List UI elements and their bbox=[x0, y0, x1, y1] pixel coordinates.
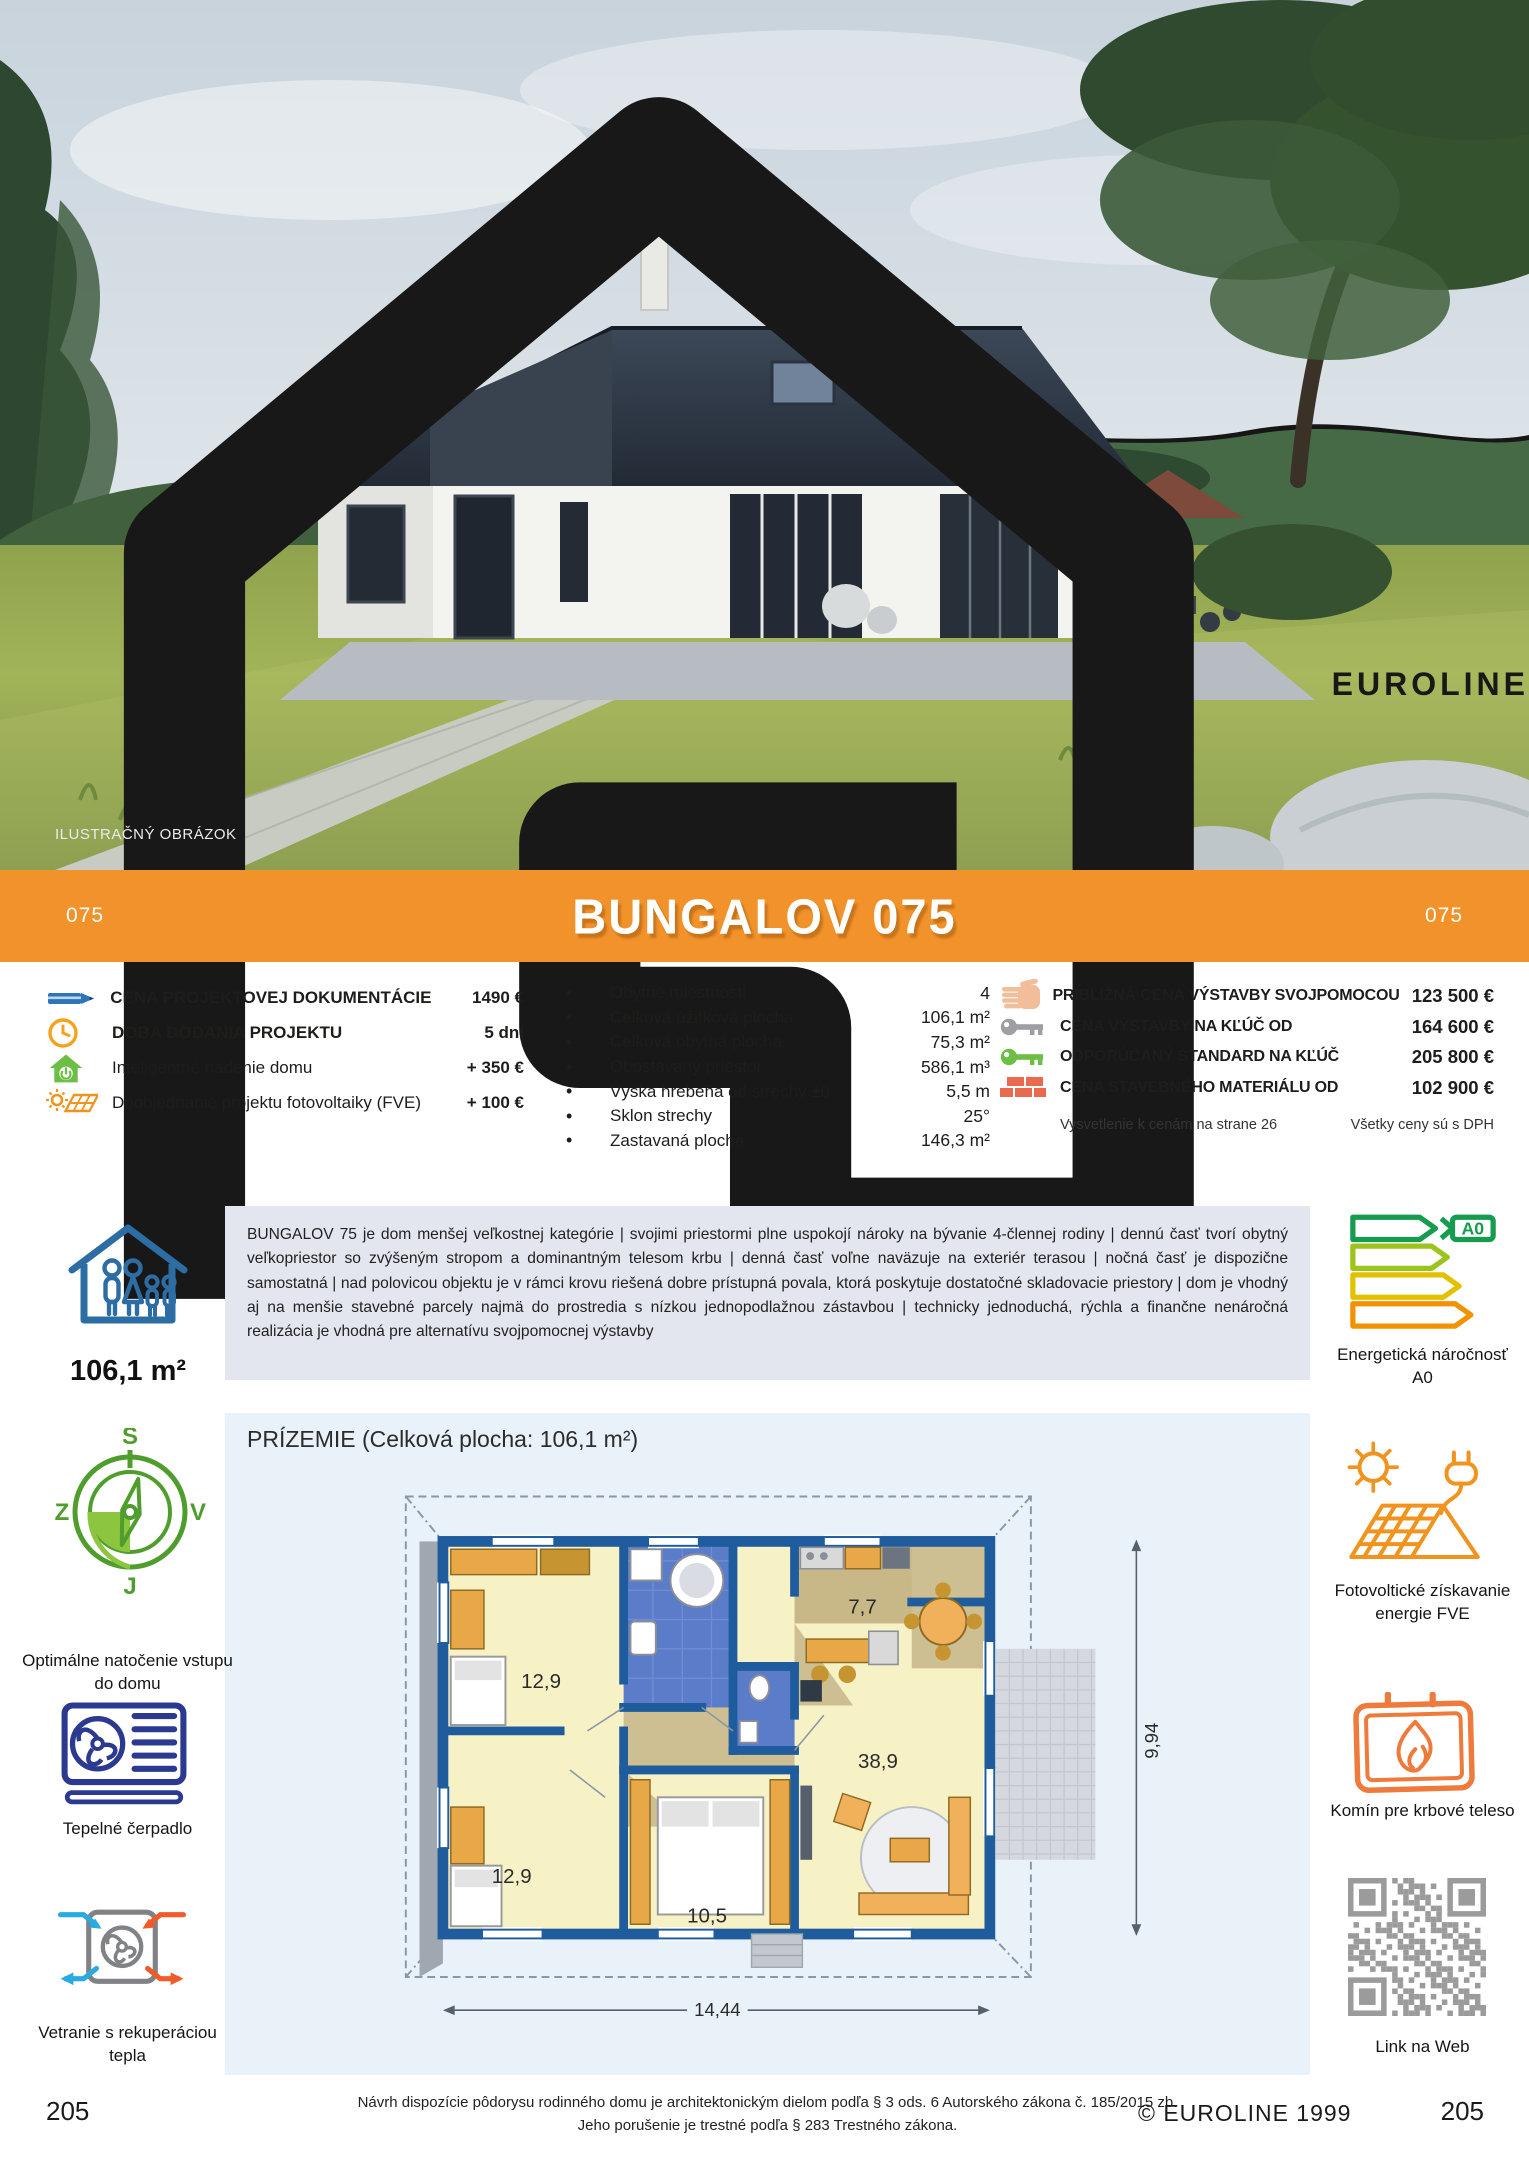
bullet bbox=[556, 1130, 610, 1151]
parameter-label: Celková obytná plocha bbox=[610, 1032, 870, 1052]
parameter-row: Zastavaná plocha146,3 m² bbox=[556, 1129, 990, 1154]
floorplan-title: PRÍZEMIE (Celková plocha: 106,1 m²) bbox=[247, 1426, 638, 1453]
parameter-row: Celková úžitková plocha106,1 m² bbox=[556, 1006, 990, 1031]
parameter-label: Obostavaný priestor bbox=[610, 1057, 870, 1077]
parameter-value: 75,3 m² bbox=[870, 1032, 990, 1053]
spec-row: CENA STAVEBNÉHO MATERIÁLU OD 102 900 € bbox=[1000, 1073, 1494, 1104]
compass-icon: S Z V J bbox=[52, 1428, 208, 1601]
spec-label: CENA STAVEBNÉHO MATERIÁLU OD bbox=[1060, 1079, 1386, 1097]
hand-icon bbox=[1000, 979, 1052, 1013]
spec-row: Doobjednanie projektu fotovoltaiky (FVE)… bbox=[46, 1085, 524, 1120]
model-code-right: 075 bbox=[1359, 904, 1529, 928]
photo-caption: ILUSTRAČNÝ OBRÁZOK bbox=[55, 826, 237, 843]
compass-north: S bbox=[122, 1428, 138, 1450]
spec-row: ODPORÚČANÝ ŠTANDARD NA KĽÚČ 205 800 € bbox=[1000, 1042, 1494, 1073]
spec-row: DOBA DODANIA PROJEKTU 5 dní bbox=[46, 1015, 524, 1050]
bricks-icon bbox=[1000, 1075, 1060, 1101]
project-price-list: CENA PROJEKTOVEJ DOKUMENTÁCIE 1490 € DOB… bbox=[46, 980, 524, 1120]
bullet bbox=[556, 1081, 610, 1102]
heat-pump-caption: Tepelné čerpadlo bbox=[20, 1818, 235, 1841]
spec-label: CENA PROJEKTOVEJ DOKUMENTÁCIE bbox=[110, 988, 431, 1008]
parameter-row: Celková obytná plocha75,3 m² bbox=[556, 1030, 990, 1055]
energy-rating-block: A0 bbox=[1330, 1212, 1515, 1335]
floorplan-drawing: 12,9 12,9 10,5 7,7 38,9 9,94 14,44 bbox=[345, 1475, 1205, 2061]
page-number-left: 205 bbox=[46, 2096, 89, 2127]
energy-caption: Energetická náročnosť A0 bbox=[1330, 1344, 1515, 1390]
total-area-badge: 106,1 m² bbox=[36, 1355, 220, 1388]
compass-west: Z bbox=[55, 1499, 70, 1526]
compass-south: J bbox=[123, 1573, 136, 1596]
parameter-label: Výška hrebeňa od strechy ±0 bbox=[610, 1082, 870, 1102]
brand-name: EUROLINE bbox=[1332, 666, 1529, 703]
clock-icon bbox=[46, 1016, 112, 1050]
area-block: 106,1 m² bbox=[36, 1216, 220, 1388]
room-label-kitchen: 7,7 bbox=[848, 1596, 877, 1619]
parameter-value: 25° bbox=[870, 1106, 990, 1127]
parameter-row: Výška hrebeňa od strechy ±05,5 m bbox=[556, 1079, 990, 1104]
room-label-bedroom3: 10,5 bbox=[687, 1904, 727, 1927]
construction-price-list: PRIBLIŽNÁ CENA VÝSTAVBY SVOJPOMOCOU 123 … bbox=[1000, 981, 1494, 1103]
fireplace-caption: Komín pre krbové teleso bbox=[1330, 1800, 1515, 1823]
family-house-icon bbox=[64, 1216, 192, 1328]
spec-row: PRIBLIŽNÁ CENA VÝSTAVBY SVOJPOMOCOU 123 … bbox=[1000, 981, 1494, 1012]
solar-addon-icon bbox=[46, 1087, 112, 1119]
spec-value: 5 dní bbox=[429, 1023, 524, 1043]
spec-label: PRIBLIŽNÁ CENA VÝSTAVBY SVOJPOMOCOU bbox=[1052, 987, 1399, 1005]
bullet bbox=[556, 983, 610, 1004]
key-green-icon bbox=[1000, 1046, 1060, 1068]
room-label-bedroom2: 12,9 bbox=[492, 1865, 532, 1888]
spec-value: 123 500 € bbox=[1400, 985, 1494, 1007]
compass-caption: Optimálne natočenie vstupu do domu bbox=[20, 1650, 235, 1696]
copyright: © EUROLINE 1999 bbox=[1138, 2100, 1351, 2127]
parameters-list: Obytné miestnosti4 Celková úžitková ploc… bbox=[556, 981, 990, 1153]
heat-pump-icon bbox=[58, 1700, 190, 1811]
parameter-label: Obytné miestnosti bbox=[610, 983, 870, 1003]
ventilation-icon bbox=[58, 1896, 186, 2005]
smart-home-icon bbox=[46, 1050, 112, 1086]
price-notes: Vysvetlenie k cenám na strane 26 Všetky … bbox=[1000, 1117, 1494, 1133]
spec-value: 205 800 € bbox=[1386, 1046, 1494, 1068]
catalog-page: EUROLINE ILUSTRAČNÝ OBRÁZOK 075 BUNGALOV… bbox=[0, 0, 1529, 2160]
photovoltaic-icon bbox=[1342, 1436, 1498, 1573]
ventilation-caption: Vetranie s rekuperáciou tepla bbox=[20, 2022, 235, 2068]
price-note-left: Vysvetlenie k cenám na strane 26 bbox=[1000, 1117, 1351, 1133]
dim-width-label: 14,44 bbox=[694, 1999, 740, 2020]
parameter-row: Sklon strechy25° bbox=[556, 1104, 990, 1129]
spec-value: + 350 € bbox=[429, 1058, 524, 1078]
spec-label: Inteligentné riadenie domu bbox=[112, 1058, 429, 1078]
model-code-left: 075 bbox=[0, 904, 170, 928]
spec-value: 102 900 € bbox=[1386, 1077, 1494, 1099]
terrace bbox=[996, 1649, 1096, 1860]
price-note-right: Všetky ceny sú s DPH bbox=[1351, 1117, 1494, 1133]
bullet bbox=[556, 1057, 610, 1078]
parameter-value: 586,1 m³ bbox=[870, 1057, 990, 1078]
spec-row: Inteligentné riadenie domu + 350 € bbox=[46, 1050, 524, 1085]
parameter-row: Obytné miestnosti4 bbox=[556, 981, 990, 1006]
spec-value: 1490 € bbox=[431, 988, 524, 1008]
spec-label: Doobjednanie projektu fotovoltaiky (FVE) bbox=[112, 1093, 429, 1113]
page-title: BUNGALOV 075 bbox=[170, 887, 1359, 944]
pencil-icon bbox=[46, 984, 110, 1012]
floorplan-section: PRÍZEMIE (Celková plocha: 106,1 m²) bbox=[225, 1413, 1310, 2075]
dim-height-label: 9,94 bbox=[1141, 1723, 1162, 1759]
parameter-label: Celková úžitková plocha bbox=[610, 1008, 870, 1028]
parameter-value: 106,1 m² bbox=[870, 1007, 990, 1028]
page-number-right: 205 bbox=[1418, 2096, 1484, 2127]
room-label-bedroom1: 12,9 bbox=[521, 1670, 561, 1693]
room-label-living: 38,9 bbox=[858, 1750, 898, 1773]
energy-class-label: A0 bbox=[1461, 1218, 1484, 1238]
parameter-value: 5,5 m bbox=[870, 1081, 990, 1102]
parameter-value: 4 bbox=[870, 983, 990, 1004]
key-gray-icon bbox=[1000, 1016, 1060, 1038]
qr-code bbox=[1348, 1878, 1486, 2021]
house-photo: EUROLINE ILUSTRAČNÝ OBRÁZOK bbox=[0, 0, 1529, 870]
title-banner: 075 BUNGALOV 075 075 bbox=[0, 870, 1529, 962]
spec-label: DOBA DODANIA PROJEKTU bbox=[112, 1023, 429, 1043]
parameter-row: Obostavaný priestor586,1 m³ bbox=[556, 1055, 990, 1080]
spec-value: + 100 € bbox=[429, 1093, 524, 1113]
parameter-value: 146,3 m² bbox=[870, 1130, 990, 1151]
compass-east: V bbox=[190, 1499, 206, 1526]
spec-row: CENA PROJEKTOVEJ DOKUMENTÁCIE 1490 € bbox=[46, 980, 524, 1015]
bullet bbox=[556, 1007, 610, 1028]
bullet bbox=[556, 1032, 610, 1053]
parameter-label: Zastavaná plocha bbox=[610, 1131, 870, 1151]
spec-value: 164 600 € bbox=[1386, 1016, 1494, 1038]
spec-label: ODPORÚČANÝ ŠTANDARD NA KĽÚČ bbox=[1060, 1048, 1386, 1066]
spec-label: CENA VÝSTAVBY NA KĽÚČ OD bbox=[1060, 1018, 1386, 1036]
spec-row: CENA VÝSTAVBY NA KĽÚČ OD 164 600 € bbox=[1000, 1012, 1494, 1043]
energy-rating-icon: A0 bbox=[1347, 1212, 1499, 1330]
photovoltaic-caption: Fotovoltické získavanie energie FVE bbox=[1330, 1580, 1515, 1626]
house-description: BUNGALOV 75 je dom menšej veľkostnej kat… bbox=[225, 1206, 1310, 1380]
qr-caption: Link na Web bbox=[1330, 2036, 1515, 2059]
fireplace-icon bbox=[1350, 1692, 1478, 1799]
parameter-label: Sklon strechy bbox=[610, 1106, 870, 1126]
bullet bbox=[556, 1106, 610, 1127]
